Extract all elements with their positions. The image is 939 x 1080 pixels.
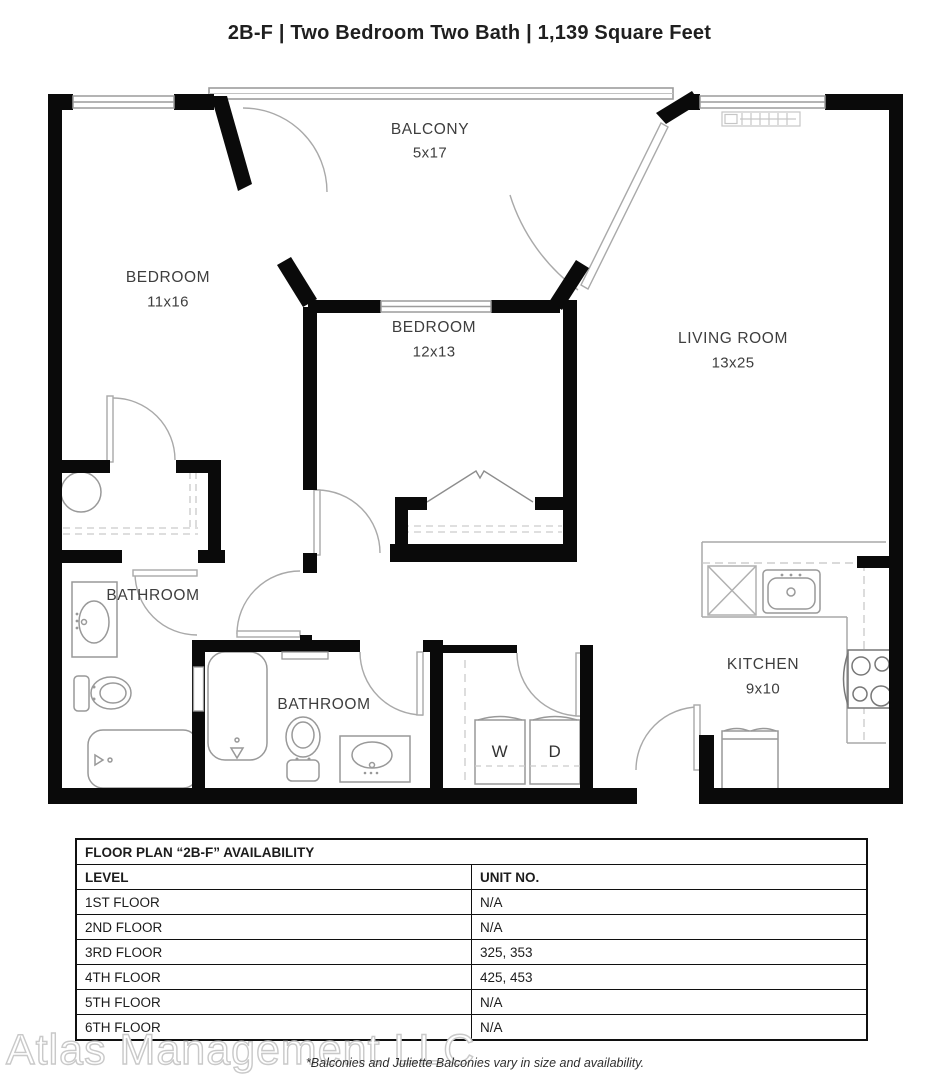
unit-cell: 425, 453 [472, 965, 868, 990]
bathroom2-toilet [286, 717, 320, 781]
level-cell: 3RD FLOOR [76, 940, 472, 965]
table-row: 3RD FLOOR325, 353 [76, 940, 867, 965]
wall-heater [722, 112, 800, 126]
bathroom2-label: BATHROOM [277, 696, 370, 714]
balcony-dims: 5x17 [413, 145, 447, 162]
dryer-label: D [549, 742, 562, 762]
table-title: FLOOR PLAN “2B-F” AVAILABILITY [76, 839, 867, 865]
column-header-level: LEVEL [76, 865, 472, 890]
kitchen-label: KITCHEN [727, 656, 799, 674]
dishwasher-box [708, 566, 756, 615]
bifold-doors [427, 471, 533, 502]
table-header-row: LEVEL UNIT NO. [76, 865, 867, 890]
level-cell: 1ST FLOOR [76, 890, 472, 915]
livingroom-label: LIVING ROOM [678, 330, 788, 348]
table-row: 1ST FLOORN/A [76, 890, 867, 915]
bathroom2-vanity [340, 736, 410, 782]
table-title-row: FLOOR PLAN “2B-F” AVAILABILITY [76, 839, 867, 865]
unit-cell: N/A [472, 890, 868, 915]
bedroom1-label: BEDROOM [126, 269, 210, 287]
bedroom2-dims: 12x13 [413, 344, 456, 361]
bathroom1-label: BATHROOM [106, 587, 199, 605]
column-header-unit: UNIT NO. [472, 865, 868, 890]
kitchen-dims: 9x10 [746, 681, 780, 698]
shower-niche [194, 667, 204, 711]
level-cell: 5TH FLOOR [76, 990, 472, 1015]
bedroom2-closet-shelf [402, 526, 562, 532]
level-cell: 4TH FLOOR [76, 965, 472, 990]
floor-plan-page: { "title": "2B-F | Two Bedroom Two Bath … [0, 0, 939, 1080]
footnote: *Balconies and Juliette Balconies vary i… [295, 1056, 655, 1070]
livingroom-window [700, 96, 825, 108]
bathroom1-toilet [74, 676, 131, 711]
bathroom1-bathtub [88, 730, 198, 788]
bedroom1-dims: 11x16 [147, 294, 189, 311]
bedroom2-label: BEDROOM [392, 319, 476, 337]
unit-cell: 325, 353 [472, 940, 868, 965]
water-heater [61, 472, 101, 512]
kitchen-sink [763, 570, 820, 613]
unit-cell: N/A [472, 990, 868, 1015]
unit-cell: N/A [472, 915, 868, 940]
table-row: 5TH FLOORN/A [76, 990, 867, 1015]
livingroom-dims: 13x25 [712, 355, 755, 372]
bedroom2-window [381, 301, 491, 312]
table-row: 4TH FLOOR425, 453 [76, 965, 867, 990]
level-cell: 2ND FLOOR [76, 915, 472, 940]
bathroom2-bathtub [208, 652, 267, 760]
medicine-cabinet [282, 652, 328, 659]
stove [844, 650, 894, 708]
unit-cell: N/A [472, 1015, 868, 1041]
washer-label: W [492, 742, 509, 762]
refrigerator [722, 729, 778, 791]
bedroom1-window [73, 96, 174, 108]
balcony-railing [209, 88, 673, 99]
balcony-label: BALCONY [391, 121, 469, 139]
availability-table: FLOOR PLAN “2B-F” AVAILABILITY LEVEL UNI… [75, 838, 868, 1041]
table-row: 2ND FLOORN/A [76, 915, 867, 940]
